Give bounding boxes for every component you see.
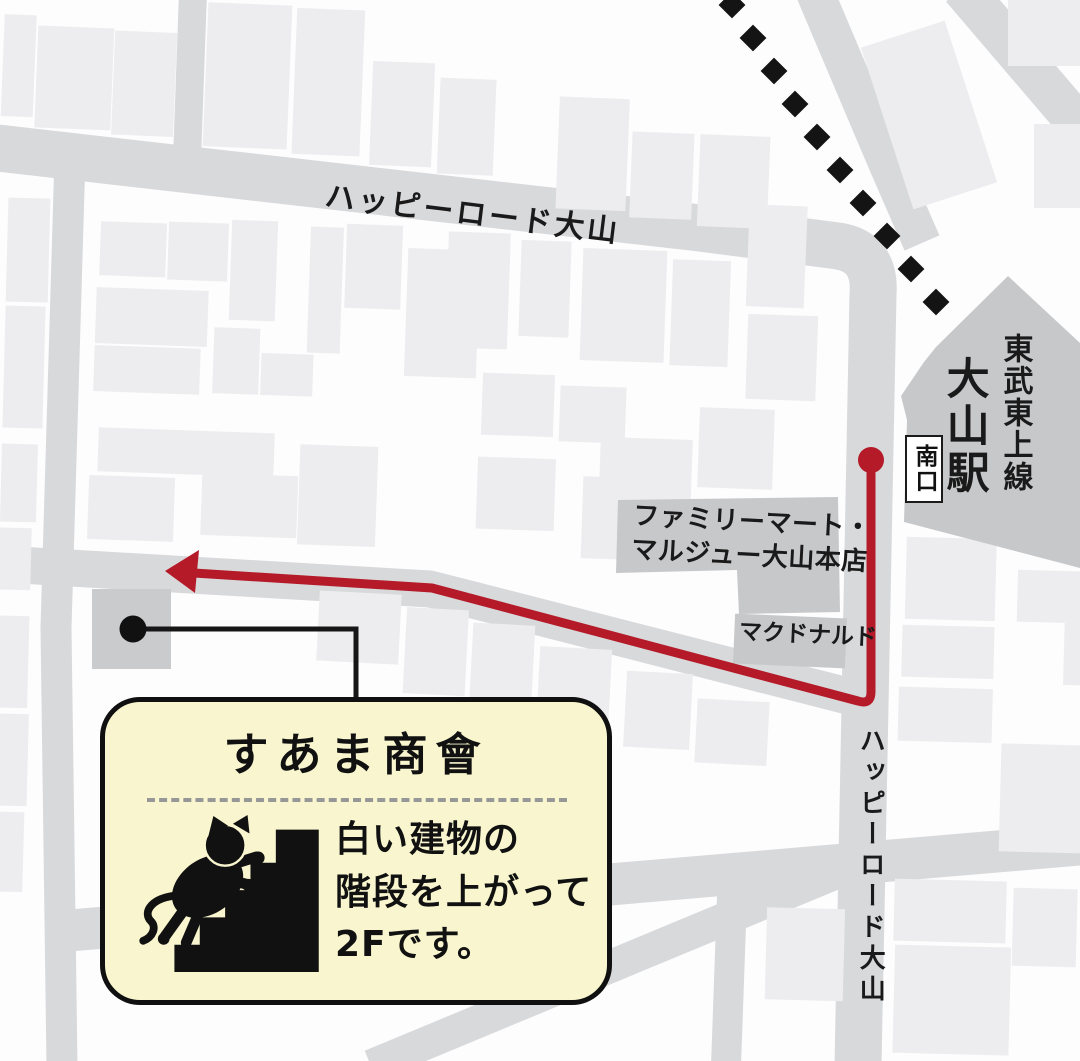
building-block: [559, 385, 627, 443]
building-block: [999, 743, 1080, 853]
mcdonalds-label: マクドナルド: [739, 620, 878, 650]
building-block: [901, 625, 994, 679]
familymart-label: ファミリーマート・ マルジュー大山本店: [630, 499, 872, 580]
building-block: [629, 131, 694, 219]
shop-name-title: すあま商會: [105, 718, 607, 783]
building-block: [307, 227, 344, 354]
building-block: [93, 345, 201, 395]
building-block: [369, 61, 435, 167]
building-block: [0, 444, 38, 523]
building-block: [344, 224, 403, 310]
building-block: [892, 945, 1011, 1056]
building-block: [1017, 570, 1080, 624]
building-block: [905, 537, 997, 621]
building-block: [580, 248, 668, 363]
south-exit-sign: 南口: [905, 435, 943, 503]
route-start-dot: [858, 447, 884, 473]
directions-line2: 階段を上がって: [335, 867, 592, 920]
building-block: [297, 444, 378, 547]
building-block: [229, 220, 278, 322]
station-line-name-label: 東武東上線: [999, 333, 1031, 493]
building-block: [87, 475, 175, 542]
railway-dash: [850, 190, 877, 217]
cat-climbing-stairs-icon: [137, 814, 323, 972]
building-block: [95, 287, 209, 347]
building-block: [476, 457, 556, 532]
street-bottom-right-vertical: [726, 868, 733, 1061]
building-block: [34, 25, 114, 130]
building-block: [403, 607, 469, 696]
directions-line3: 2Fです。: [335, 919, 592, 972]
building-block: [167, 222, 229, 282]
directions-line1: 白い建物の: [335, 814, 592, 867]
building-block: [746, 204, 808, 308]
callout-body: 白い建物の 階段を上がって 2Fです。: [105, 802, 607, 972]
building-block: [623, 671, 693, 750]
building-block: [898, 687, 993, 743]
building-block: [445, 231, 511, 349]
building-block: [1012, 888, 1078, 968]
building-block: [2, 306, 45, 429]
destination-callout: すあま商會: [100, 697, 612, 1005]
building-block: [0, 527, 32, 590]
building-block: [518, 240, 571, 338]
building-block: [99, 221, 167, 277]
building-block: [203, 2, 293, 149]
street-upper-left-vertical: [187, 0, 193, 160]
building-block: [765, 907, 845, 1001]
building-block: [1, 14, 37, 117]
building-block: [212, 327, 260, 395]
railway-dash: [923, 289, 950, 316]
railway-dash: [740, 25, 767, 52]
building-block: [260, 353, 313, 397]
building-block: [555, 96, 629, 211]
access-map: ハッピーロード大山 ファミリーマート・ マルジュー大山本店 マクドナルド 東武東…: [0, 0, 1080, 1061]
building-block: [437, 78, 497, 176]
street-name-right: ハッピーロード大山: [856, 727, 883, 1006]
building-block: [1063, 621, 1080, 686]
building-block: [669, 259, 731, 367]
building-block: [6, 198, 51, 303]
building-block: [291, 8, 365, 157]
cat-stairs-graphic: [137, 814, 323, 972]
south-exit-label: 南口: [907, 444, 941, 494]
building-block: [0, 615, 29, 708]
station-building: [901, 276, 1080, 568]
building-block: [697, 407, 775, 490]
building-block: [481, 373, 555, 437]
railway-dash: [782, 91, 809, 118]
building-block: [97, 427, 274, 477]
building-block: [111, 31, 177, 137]
building-block: [745, 314, 818, 401]
building-block: [893, 879, 1007, 944]
railway-dash: [827, 157, 854, 184]
building-block: [694, 698, 769, 766]
destination-dot: [120, 616, 147, 643]
building-block: [0, 713, 29, 806]
directions-text: 白い建物の 階段を上がって 2Fです。: [335, 814, 592, 972]
railway-dash: [804, 124, 831, 151]
station-name-label: 大山駅: [941, 356, 986, 497]
building-block: [200, 473, 298, 538]
building-block: [1034, 124, 1080, 208]
building-block: [1008, 0, 1080, 66]
railway-dash: [761, 58, 788, 85]
building-block: [0, 811, 24, 892]
railway-dash: [898, 256, 925, 283]
railway-dash: [719, 0, 746, 18]
